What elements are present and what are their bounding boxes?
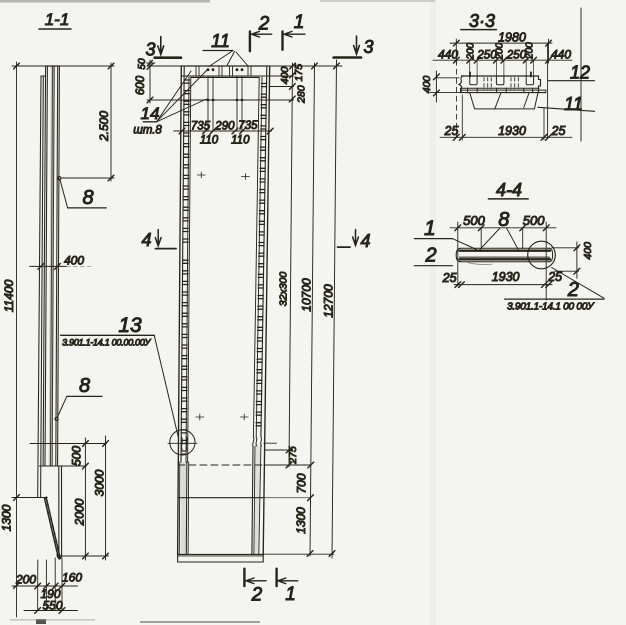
svg-text:110: 110	[231, 135, 250, 147]
svg-text:500: 500	[463, 213, 485, 228]
svg-text:2: 2	[251, 585, 263, 606]
svg-text:400: 400	[421, 76, 433, 94]
svg-text:2: 2	[567, 279, 579, 301]
svg-text:4: 4	[141, 230, 151, 250]
svg-text:500: 500	[70, 446, 84, 466]
svg-text:12: 12	[570, 63, 590, 83]
svg-text:13: 13	[118, 314, 142, 337]
svg-text:290: 290	[214, 121, 235, 133]
svg-text:200: 200	[495, 42, 506, 60]
svg-text:8: 8	[79, 375, 90, 397]
svg-text:2: 2	[424, 245, 436, 267]
svg-text:25: 25	[442, 271, 457, 285]
svg-text:3: 3	[145, 40, 155, 60]
svg-text:175: 175	[293, 64, 305, 82]
svg-text:280: 280	[295, 85, 307, 104]
svg-text:1-1: 1-1	[45, 10, 70, 29]
svg-text:1930: 1930	[492, 270, 520, 284]
svg-text:700: 700	[295, 473, 309, 493]
svg-text:3.901.1-14.1 00 00У: 3.901.1-14.1 00 00У	[507, 302, 595, 313]
svg-text:11: 11	[211, 31, 230, 51]
svg-text:500: 500	[523, 213, 545, 228]
svg-text:25: 25	[551, 124, 566, 138]
svg-text:600: 600	[135, 75, 147, 95]
svg-text:3·3: 3·3	[469, 11, 495, 31]
svg-text:32x300: 32x300	[278, 272, 290, 307]
svg-text:шт.8: шт.8	[133, 125, 162, 137]
svg-text:440: 440	[551, 48, 571, 62]
svg-text:110: 110	[200, 135, 219, 147]
svg-text:14: 14	[141, 104, 160, 123]
svg-text:1300: 1300	[294, 507, 308, 534]
svg-text:1: 1	[424, 217, 436, 240]
svg-text:50: 50	[137, 58, 148, 70]
svg-text:200: 200	[525, 42, 536, 60]
svg-text:550: 550	[42, 599, 62, 613]
svg-text:8: 8	[82, 187, 93, 209]
svg-text:160: 160	[62, 571, 82, 585]
svg-text:3000: 3000	[93, 469, 107, 496]
svg-text:1300: 1300	[0, 504, 14, 531]
svg-text:11400: 11400	[2, 279, 16, 312]
svg-text:11: 11	[564, 94, 583, 114]
svg-text:200: 200	[466, 42, 477, 60]
svg-text:2000: 2000	[73, 498, 87, 526]
svg-text:25: 25	[444, 124, 459, 138]
svg-text:2.500: 2.500	[97, 111, 111, 142]
svg-text:440: 440	[438, 48, 458, 62]
svg-text:12700: 12700	[322, 284, 336, 318]
svg-text:3: 3	[363, 37, 373, 57]
svg-text:10700: 10700	[300, 278, 314, 312]
svg-text:1: 1	[294, 12, 305, 33]
svg-text:4-4: 4-4	[496, 180, 522, 200]
svg-text:1980: 1980	[498, 31, 526, 45]
svg-text:400: 400	[279, 67, 291, 85]
svg-text:400: 400	[582, 242, 594, 260]
svg-text:275: 275	[287, 446, 299, 465]
svg-text:400: 400	[64, 254, 84, 268]
svg-text:1: 1	[285, 584, 296, 605]
svg-text:735: 735	[238, 120, 258, 132]
svg-text:735: 735	[191, 121, 211, 133]
svg-text:4: 4	[360, 231, 370, 251]
svg-text:200: 200	[15, 573, 36, 587]
svg-text:1930: 1930	[498, 124, 526, 138]
svg-text:3.901.1-14.1 00.00.00У: 3.901.1-14.1 00.00.00У	[62, 338, 152, 348]
